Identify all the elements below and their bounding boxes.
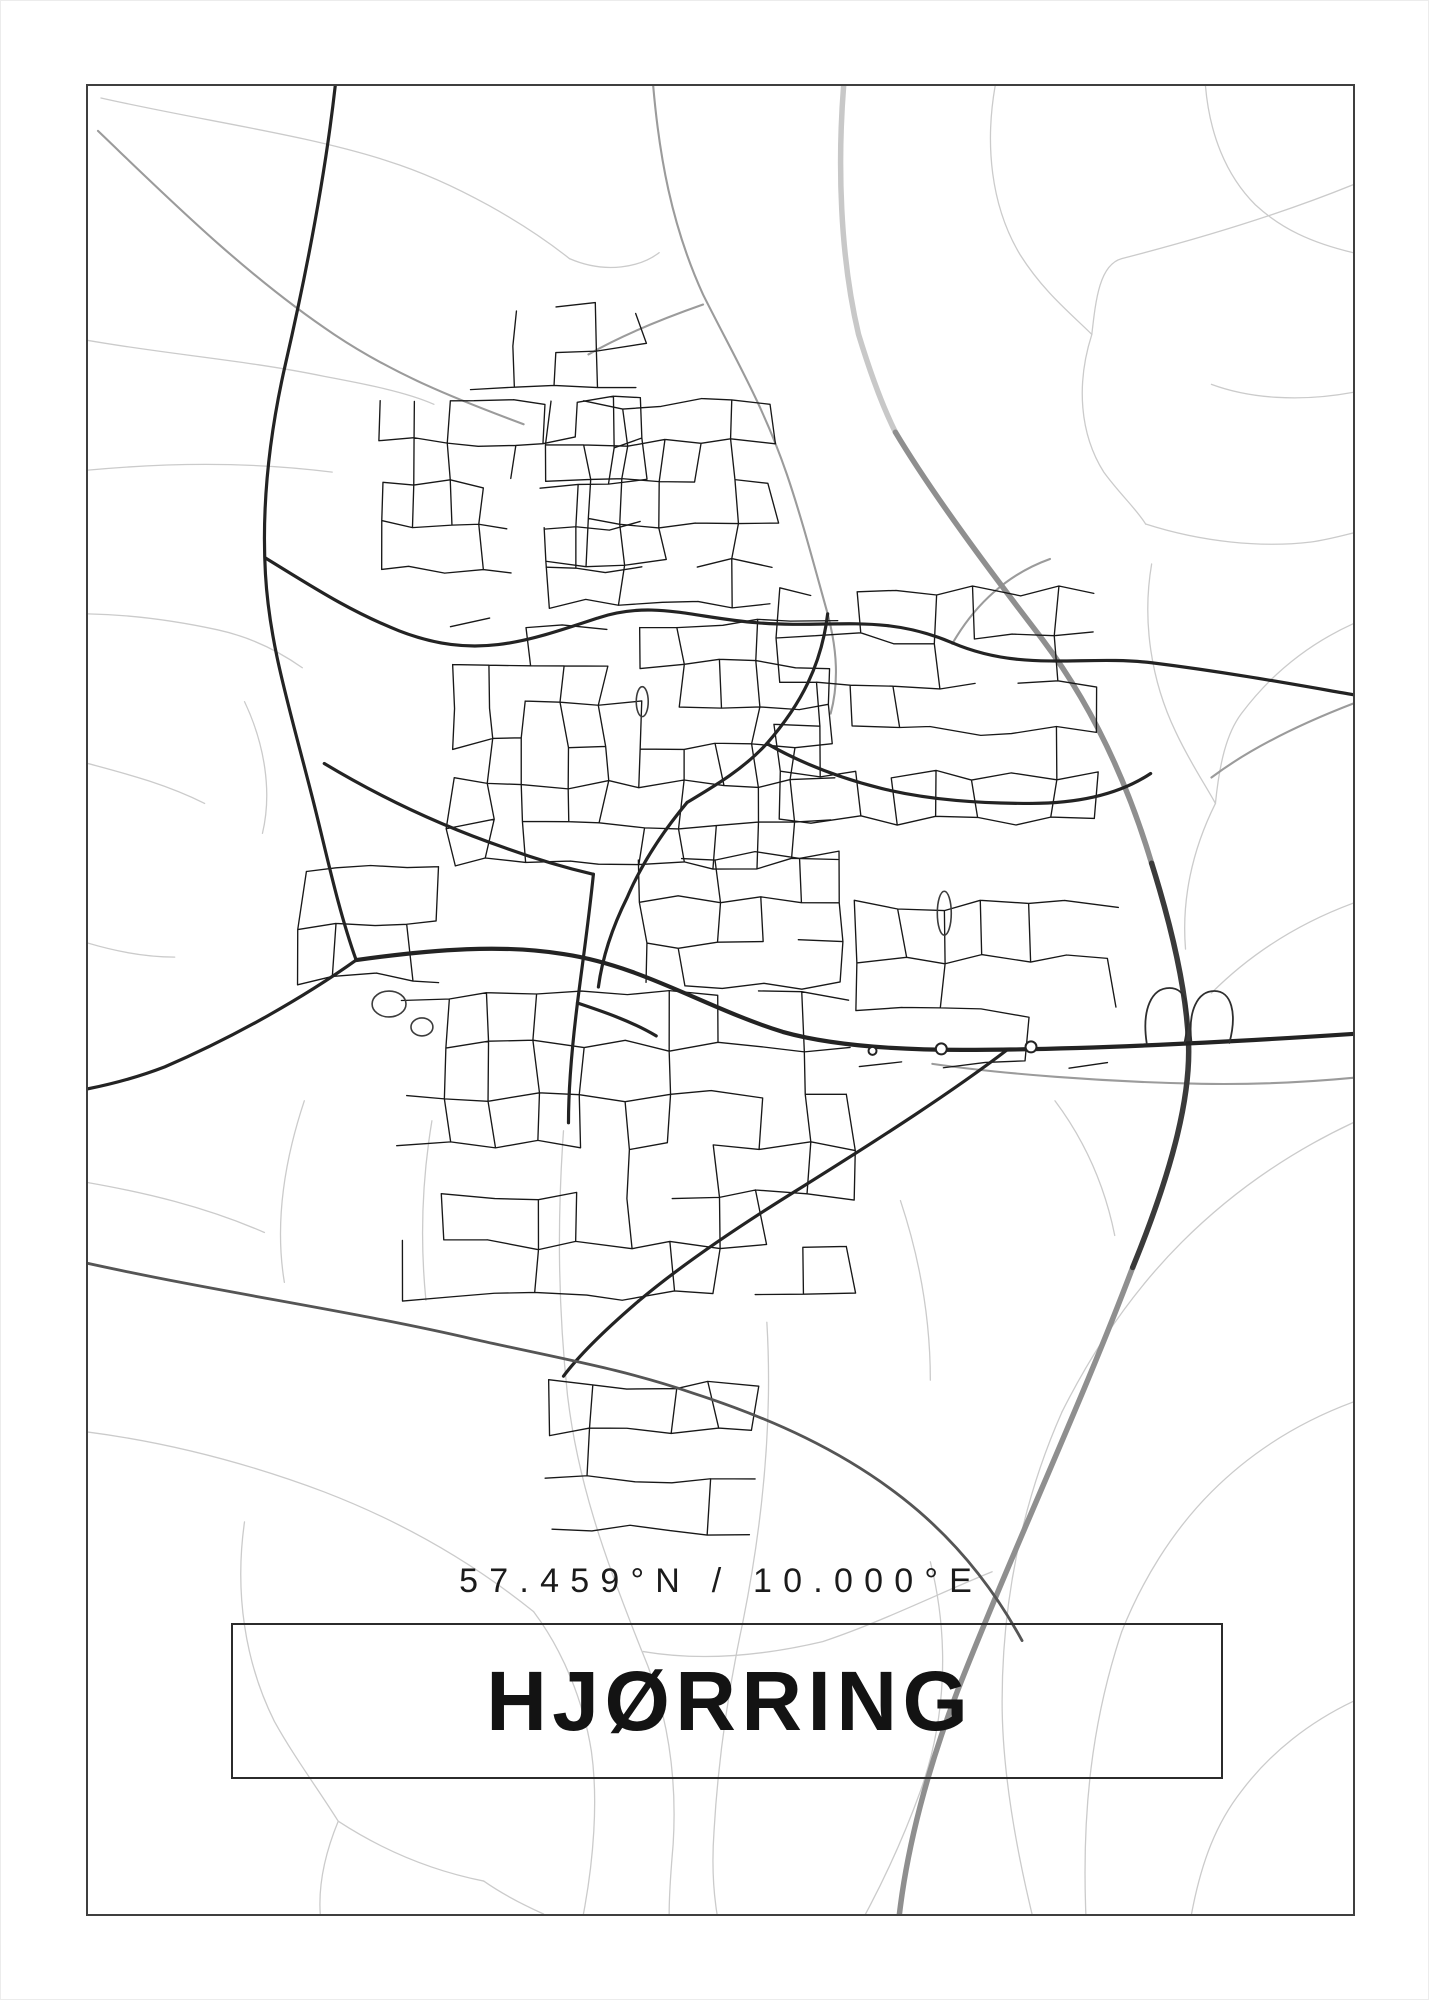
road-layer-primary-road [356,949,1353,1050]
road-layer-residential-streets [298,303,1119,1536]
map-poster: 57.459°N / 10.000°E HJØRRING [0,0,1429,2000]
road-layer-connector-medium [98,86,1353,1084]
city-title: HJØRRING [481,1659,974,1743]
coordinates-label: 57.459°N / 10.000°E [1,1562,1429,1601]
road-layer-motorway-dark [1133,863,1189,1267]
road-layer-motorway-light [841,86,896,432]
title-box: HJØRRING [231,1623,1223,1779]
